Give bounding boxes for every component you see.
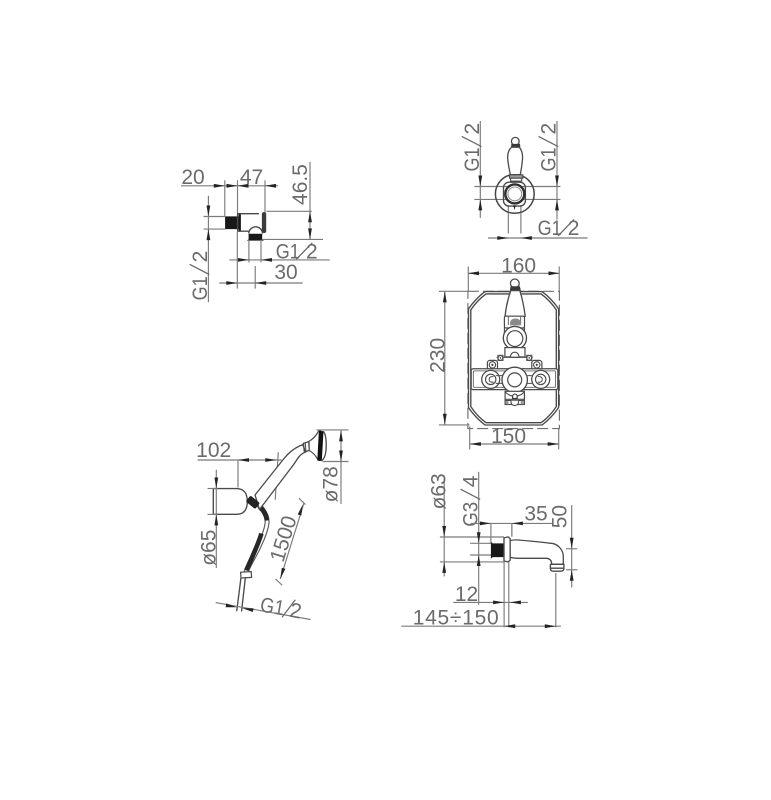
svg-text:ø65: ø65 bbox=[198, 530, 221, 566]
svg-text:46.5: 46.5 bbox=[289, 164, 312, 205]
svg-text:ø78: ø78 bbox=[320, 466, 343, 502]
svg-text:145÷150: 145÷150 bbox=[413, 607, 499, 630]
svg-text:230: 230 bbox=[426, 338, 449, 373]
svg-text:2: 2 bbox=[538, 123, 561, 135]
svg-text:102: 102 bbox=[196, 439, 231, 462]
svg-text:ø63: ø63 bbox=[428, 473, 451, 509]
svg-text:G1: G1 bbox=[538, 148, 561, 172]
svg-text:150: 150 bbox=[491, 425, 526, 448]
svg-text:G1: G1 bbox=[276, 240, 300, 263]
svg-text:2: 2 bbox=[461, 123, 484, 135]
svg-text:12: 12 bbox=[455, 583, 478, 606]
svg-text:47: 47 bbox=[240, 166, 263, 189]
svg-text:G1: G1 bbox=[461, 148, 484, 172]
svg-text:20: 20 bbox=[181, 166, 204, 189]
svg-text:G1: G1 bbox=[189, 276, 212, 300]
svg-text:160: 160 bbox=[501, 255, 536, 278]
svg-text:35: 35 bbox=[524, 502, 547, 525]
svg-text:G1: G1 bbox=[258, 593, 286, 620]
svg-text:G1: G1 bbox=[538, 217, 562, 240]
svg-text:30: 30 bbox=[274, 261, 297, 284]
svg-text:50: 50 bbox=[549, 505, 572, 528]
svg-text:2: 2 bbox=[189, 251, 212, 263]
svg-text:4: 4 bbox=[460, 475, 483, 487]
